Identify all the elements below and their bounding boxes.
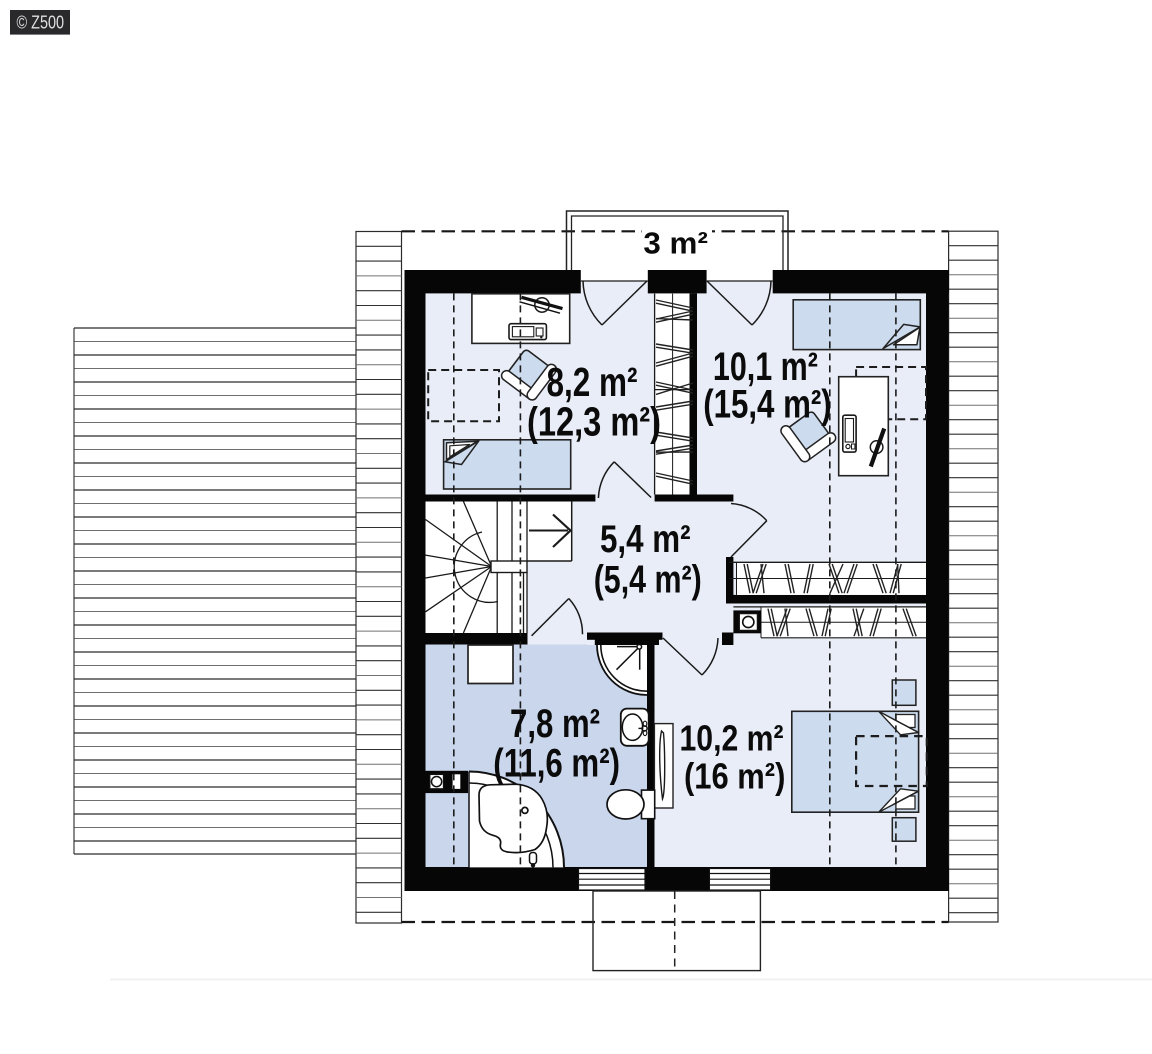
svg-text:(15,4 m²): (15,4 m²) [703, 383, 832, 427]
svg-text:(5,4 m²): (5,4 m²) [594, 559, 702, 602]
svg-text:7,8 m²: 7,8 m² [510, 702, 600, 746]
svg-text:(16 m²): (16 m²) [684, 756, 785, 797]
svg-text:10,2 m²: 10,2 m² [680, 717, 784, 758]
svg-text:5,4 m²: 5,4 m² [600, 518, 691, 561]
svg-text:(12,3 m²): (12,3 m²) [527, 399, 661, 445]
svg-text:3 m²: 3 m² [643, 226, 708, 260]
svg-text:(11,6 m²): (11,6 m²) [493, 742, 620, 786]
svg-text:© Z500: © Z500 [17, 13, 65, 33]
